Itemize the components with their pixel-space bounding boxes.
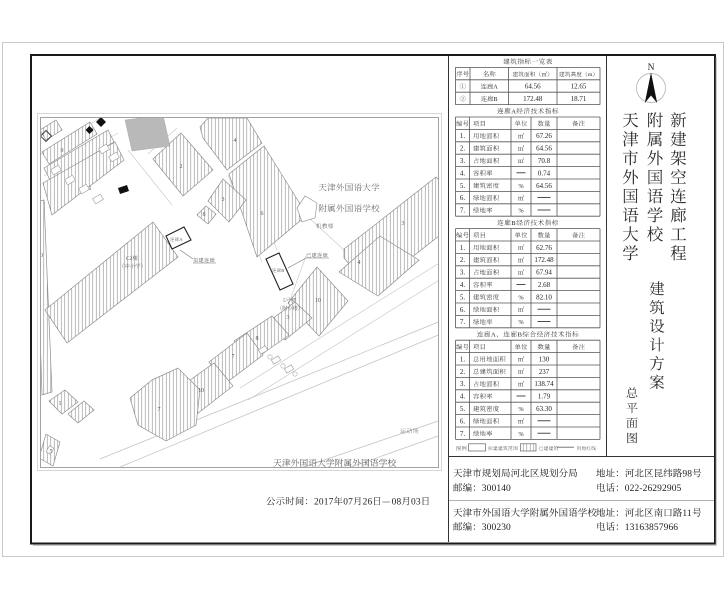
svg-text:B: B — [493, 96, 497, 103]
svg-text:N: N — [648, 63, 655, 73]
svg-text:237: 237 — [539, 368, 550, 376]
svg-text:1.: 1. — [460, 244, 466, 252]
svg-text:2: 2 — [180, 164, 183, 170]
svg-text:%: % — [518, 406, 524, 413]
svg-text:26: 26 — [363, 498, 373, 508]
svg-text:2.: 2. — [460, 145, 466, 153]
svg-text:70.8: 70.8 — [538, 157, 551, 165]
svg-text:A: A — [491, 332, 496, 339]
svg-text:1.: 1. — [460, 132, 466, 140]
svg-text:7: 7 — [158, 407, 161, 413]
svg-text:63.30: 63.30 — [536, 405, 552, 413]
svg-text:5.: 5. — [460, 293, 466, 301]
svg-text:5.: 5. — [460, 182, 466, 190]
svg-text:m: m — [588, 72, 593, 78]
svg-text:13163857966: 13163857966 — [625, 523, 678, 533]
svg-text:0.74: 0.74 — [538, 169, 551, 177]
svg-text:64.56: 64.56 — [525, 83, 541, 91]
svg-text:98: 98 — [682, 470, 692, 480]
svg-text:64.56: 64.56 — [536, 145, 552, 153]
svg-text:10: 10 — [198, 388, 204, 394]
svg-text:3: 3 — [287, 315, 290, 321]
svg-text:B: B — [281, 268, 284, 273]
svg-text:C2: C2 — [126, 256, 133, 262]
svg-text:67.94: 67.94 — [536, 269, 552, 277]
svg-text:1: 1 — [89, 186, 92, 192]
svg-text:7.: 7. — [460, 430, 466, 438]
svg-text:4.: 4. — [460, 169, 466, 177]
svg-text:%: % — [518, 294, 524, 301]
svg-text:130: 130 — [539, 355, 550, 363]
svg-text:6: 6 — [261, 211, 264, 217]
svg-text:5.: 5. — [460, 405, 466, 413]
svg-text:07: 07 — [343, 498, 353, 508]
svg-text:3.: 3. — [460, 380, 466, 388]
svg-text:1: 1 — [59, 401, 62, 407]
svg-text:1.: 1. — [460, 355, 466, 363]
svg-text:172.48: 172.48 — [523, 95, 543, 103]
svg-text:B: B — [518, 332, 523, 339]
svg-text:3: 3 — [402, 221, 405, 227]
svg-text:2.: 2. — [460, 368, 466, 376]
svg-text:12.65: 12.65 — [571, 83, 587, 91]
svg-text:4.: 4. — [460, 281, 466, 289]
svg-text:7.: 7. — [460, 318, 466, 326]
svg-text:08: 08 — [392, 498, 402, 508]
svg-text:A: A — [493, 84, 498, 91]
svg-text:%: % — [518, 431, 524, 438]
svg-text:82.10: 82.10 — [536, 293, 552, 301]
svg-text:022-26292905: 022-26292905 — [625, 484, 682, 494]
svg-text:5: 5 — [283, 298, 286, 304]
svg-text:B: B — [511, 220, 516, 227]
svg-text:7.: 7. — [460, 207, 466, 215]
svg-text:3.: 3. — [460, 269, 466, 277]
svg-text:300230: 300230 — [482, 523, 511, 533]
svg-text:300140: 300140 — [482, 484, 511, 494]
svg-text:3.: 3. — [460, 157, 466, 165]
svg-text:6.: 6. — [460, 194, 466, 202]
svg-text:2.68: 2.68 — [538, 281, 551, 289]
svg-text:172.48: 172.48 — [534, 256, 554, 264]
svg-text:4: 4 — [358, 260, 361, 266]
svg-text:18.71: 18.71 — [571, 95, 587, 103]
svg-text:5: 5 — [50, 449, 53, 455]
svg-text:8: 8 — [256, 336, 259, 342]
svg-text:2.: 2. — [460, 256, 466, 264]
svg-text:%: % — [518, 208, 524, 215]
svg-text:3: 3 — [222, 197, 225, 203]
svg-text:%: % — [518, 319, 524, 326]
svg-text:6.: 6. — [460, 306, 466, 314]
svg-text:4: 4 — [234, 138, 237, 144]
svg-text:1.79: 1.79 — [538, 393, 551, 401]
svg-text:64.56: 64.56 — [536, 182, 552, 190]
svg-text:8: 8 — [203, 212, 206, 218]
svg-text:6.: 6. — [460, 417, 466, 425]
svg-text:9: 9 — [61, 148, 64, 154]
svg-text:138.74: 138.74 — [534, 380, 554, 388]
svg-text:03: 03 — [411, 498, 421, 508]
svg-text:2017: 2017 — [314, 498, 334, 508]
svg-text:7: 7 — [232, 354, 235, 360]
svg-text:4.: 4. — [460, 393, 466, 401]
svg-text:A: A — [511, 108, 516, 115]
svg-text:10: 10 — [315, 298, 321, 304]
svg-text:11: 11 — [682, 509, 691, 519]
svg-text:62.76: 62.76 — [536, 244, 552, 252]
svg-text:%: % — [518, 183, 524, 190]
svg-text:67.26: 67.26 — [536, 132, 552, 140]
